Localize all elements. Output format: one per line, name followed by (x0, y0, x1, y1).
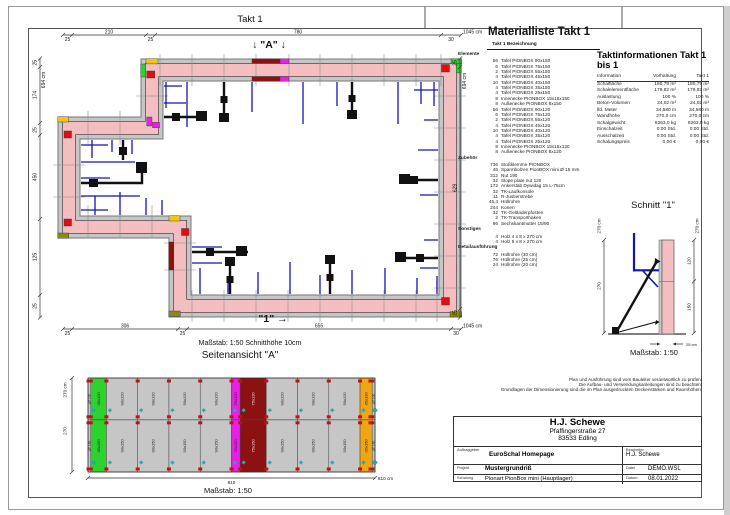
clamp-marker (296, 468, 300, 471)
clamp-marker (369, 468, 373, 471)
taktinfo-row: Schalungspreis0,00 €0,00 € (597, 140, 709, 147)
clamp-marker (230, 421, 234, 424)
material-item-qty: 8 (458, 149, 498, 154)
materialliste-title: Materialliste Takt 1 (488, 26, 590, 38)
elevation-panel-label: 90x120 (311, 392, 316, 406)
title-block: H.J. Schewe Pfaffingerstraße 27 83533 Ed… (453, 416, 702, 482)
clamp-marker (369, 421, 373, 424)
elevation-panel-label: 90x150 (119, 439, 124, 453)
elevation-panel-label: 90x150 (342, 439, 347, 453)
svg-text:25: 25 (33, 303, 39, 309)
value-bearbeiter: H.J. Schewe (626, 452, 701, 459)
elevation-panel-label: 90x120 (279, 392, 284, 406)
clamp-marker (87, 415, 91, 418)
taktinfo-cell: Schalungspreis (597, 140, 639, 147)
elevation-panel-label: 90x150 (279, 439, 284, 453)
clamp-marker (238, 421, 242, 424)
clamp-marker (264, 468, 268, 471)
label-datum: Datum (626, 476, 648, 484)
disclaimer-note: Plan und Ausführung sind vom Bauleiter v… (360, 377, 702, 393)
elevation-panel-label: 25x120 (233, 392, 238, 406)
elevation-panel-label: AE 120 (372, 393, 376, 404)
disclaimer-line: Grundlagen der Dimensionierung sind die … (360, 387, 702, 392)
material-item-qty: 96 (458, 221, 498, 226)
clamp-marker (327, 421, 331, 424)
svg-text:150: 150 (687, 303, 692, 311)
material-item-qty: 24 (458, 262, 498, 267)
elevation-panel-label: 90x120 (182, 392, 187, 406)
elevation-panel-label: 90x150 (213, 439, 218, 453)
svg-text:25: 25 (453, 310, 459, 316)
taktinfo-cell: 0,00 € (639, 140, 676, 147)
material-item-row: 4Holz 5 x 8 x 270 cm (458, 239, 608, 244)
section-marker-1: "1" → (243, 313, 303, 325)
clamp-marker (264, 415, 268, 418)
svg-text:25: 25 (148, 37, 154, 43)
svg-text:25: 25 (180, 331, 186, 337)
materialliste-items: Elemente56Tafel PIONBOX 90x1506Tafel PIO… (458, 51, 608, 268)
clamp-marker (136, 380, 140, 383)
company-name: H.J. Schewe (454, 418, 701, 428)
title-block-company-header: H.J. Schewe Pfaffingerstraße 27 83533 Ed… (454, 417, 701, 447)
cell-projekt: Projekt Mustergrundriß (454, 465, 623, 474)
material-item-name: Außenecke PIONBOX 8x120 (501, 149, 561, 154)
clamp-marker (296, 380, 300, 383)
sideview-title: Seitenansicht "A" (140, 350, 340, 361)
label-projekt: Projekt (457, 466, 485, 474)
elevation-panel-label: 90x150 (151, 439, 156, 453)
schnitt-scale: Maßstab: 1:50 (604, 348, 704, 357)
cell-datum: Datum 08.01.2022 (623, 475, 701, 484)
clamp-marker (136, 421, 140, 424)
elevation-panel-label: 75x150 (251, 439, 256, 453)
cell-bearbeiter: Bearbeiter H.J. Schewe (623, 447, 701, 464)
clamp-marker (87, 380, 91, 383)
plan-sheet-page: 25 210 25 780 30 1045 cm 25 306 25 655 3… (0, 0, 730, 515)
svg-text:810 cm: 810 cm (378, 476, 393, 481)
plan-title: Takt 1 (215, 14, 285, 25)
svg-text:25 cm: 25 cm (686, 342, 698, 347)
elevation-panel-label: AE 150 (372, 440, 376, 451)
materialliste-header-rule (487, 49, 600, 50)
material-item-qty: 4 (458, 239, 498, 244)
plan-scale-note: Maßstab: 1:50 Schnitthöhe 10cm (150, 340, 350, 347)
clamp-marker (238, 415, 242, 418)
value-datum: 08.01.2022 (648, 476, 678, 484)
clamp-marker (230, 380, 234, 383)
elevation-panel-label: 75x120 (251, 392, 256, 406)
material-item-row: 96Sechskantmutter 15/90 (458, 221, 608, 226)
taktinfo-col-takt1: Takt 1 (676, 74, 709, 81)
taktinfo-title: Taktinformationen Takt 1 bis 1 (597, 50, 709, 70)
clamp-marker (104, 421, 108, 424)
svg-text:25: 25 (65, 331, 71, 337)
clamp-marker (136, 468, 140, 471)
svg-text:270: 270 (63, 427, 68, 435)
label-datei: Datei (626, 466, 648, 474)
cell-schalung: Schalung Pionart PionBox mini (Hauptlage… (454, 475, 623, 484)
svg-text:1045 cm: 1045 cm (463, 324, 482, 330)
section-marker-a: ↓ "A" ↓ (234, 39, 304, 51)
clamp-marker (238, 468, 242, 471)
material-item-name: Holz 5 x 8 x 270 cm (501, 239, 542, 244)
taktinfo-header-row: Information Vorhaltung Takt 1 (597, 74, 709, 82)
elevation-panel-label: 35x120 (364, 392, 369, 406)
clamp-marker (167, 415, 171, 418)
svg-text:270: 270 (597, 282, 602, 290)
elevation-panel-label: 45x120 (96, 392, 101, 406)
svg-text:780: 780 (294, 30, 303, 36)
label-schalung: Schalung (457, 476, 485, 484)
value-datei: DEMO.WSL (648, 466, 681, 474)
material-item-row: 8Außenecke PIONBOX 8x120 (458, 149, 608, 154)
clamp-marker (87, 468, 91, 471)
clamp-marker (136, 415, 140, 418)
taktinfo-table: Taktinformationen Takt 1 bis 1 Informati… (597, 50, 709, 147)
svg-text:810: 810 (228, 480, 236, 485)
material-item-name: Sechskantmutter 15/90 (501, 221, 549, 226)
clamp-marker (198, 380, 202, 383)
svg-text:25: 25 (65, 37, 71, 43)
clamp-marker (167, 421, 171, 424)
clamp-marker (369, 415, 373, 418)
elevation-panel-label: 25x150 (233, 439, 238, 453)
clamp-marker (167, 468, 171, 471)
value-schalung: Pionart PionBox mini (Hauptlager) (485, 476, 573, 484)
company-city: 83533 Edling (454, 435, 701, 442)
svg-text:270 cm: 270 cm (695, 218, 700, 233)
value-auftraggeber: EuroSchal Homepage (489, 452, 622, 459)
clamp-marker (238, 380, 242, 383)
cell-auftraggeber: Auftraggeber EuroSchal Homepage (454, 447, 623, 464)
taktinfo-cell: 0,00 € (676, 140, 709, 147)
clamp-marker (296, 421, 300, 424)
clamp-marker (198, 421, 202, 424)
svg-text:120: 120 (687, 257, 692, 265)
schnitt-title: Schnitt "1" (598, 200, 708, 211)
clamp-marker (230, 468, 234, 471)
svg-text:25: 25 (33, 60, 39, 66)
svg-text:125: 125 (33, 253, 39, 262)
svg-text:174: 174 (33, 91, 39, 100)
clamp-marker (327, 468, 331, 471)
schnitt-panel (659, 240, 662, 334)
taktinfo-col-vorhaltung: Vorhaltung (639, 74, 676, 81)
clamp-marker (264, 421, 268, 424)
value-projekt: Mustergrundriß (485, 466, 532, 474)
svg-text:30: 30 (448, 37, 454, 43)
svg-text:655: 655 (315, 324, 324, 330)
elevation-panel-label: 35x150 (364, 439, 369, 453)
clamp-marker (198, 415, 202, 418)
clamp-marker (327, 380, 331, 383)
svg-text:25: 25 (33, 127, 39, 133)
clamp-marker (358, 421, 362, 424)
material-item-name: Hüllrohre (20 cm) (501, 262, 537, 267)
cell-datei: Datei DEMO.WSL (623, 465, 701, 474)
svg-text:210: 210 (105, 30, 114, 36)
material-item-row: 24Hüllrohre (20 cm) (458, 262, 608, 267)
svg-text:1045 cm: 1045 cm (463, 30, 482, 36)
clamp-marker (358, 415, 362, 418)
elevation-panel-label: 90x120 (213, 392, 218, 406)
clamp-marker (104, 380, 108, 383)
side-view: AE 120AE 15045x12045x15090x12090x15090x1… (63, 376, 394, 485)
sideview-scale: Maßstab: 1:50 (178, 486, 278, 495)
clamp-marker (230, 415, 234, 418)
clamp-marker (296, 415, 300, 418)
svg-text:694 cm: 694 cm (41, 72, 47, 88)
clamp-marker (264, 380, 268, 383)
clamp-marker (358, 468, 362, 471)
elevation-panel-label: 90x120 (151, 392, 156, 406)
svg-text:30: 30 (453, 331, 459, 337)
company-street: Pfaffingerstraße 27 (454, 428, 701, 435)
elevation-panel-label: 90x150 (182, 439, 187, 453)
elevation-panel-label: 45x150 (96, 439, 101, 453)
svg-text:270 cm: 270 cm (63, 382, 68, 397)
elevation-panel-label: 90x150 (311, 439, 316, 453)
clamp-marker (198, 468, 202, 471)
svg-text:450: 450 (33, 173, 39, 182)
elevation-panel-label: 90x120 (119, 392, 124, 406)
schnitt-wall (662, 240, 674, 334)
clamp-marker (327, 415, 331, 418)
clamp-marker (104, 415, 108, 418)
elevation-panel-label: 90x120 (342, 392, 347, 406)
taktinfo-col-information: Information (597, 74, 639, 81)
clamp-marker (87, 421, 91, 424)
clamp-marker (167, 380, 171, 383)
clamp-marker (104, 468, 108, 471)
materialliste-col-header: Takt 1 Bezeichnung (492, 42, 537, 47)
svg-text:306: 306 (121, 324, 130, 330)
